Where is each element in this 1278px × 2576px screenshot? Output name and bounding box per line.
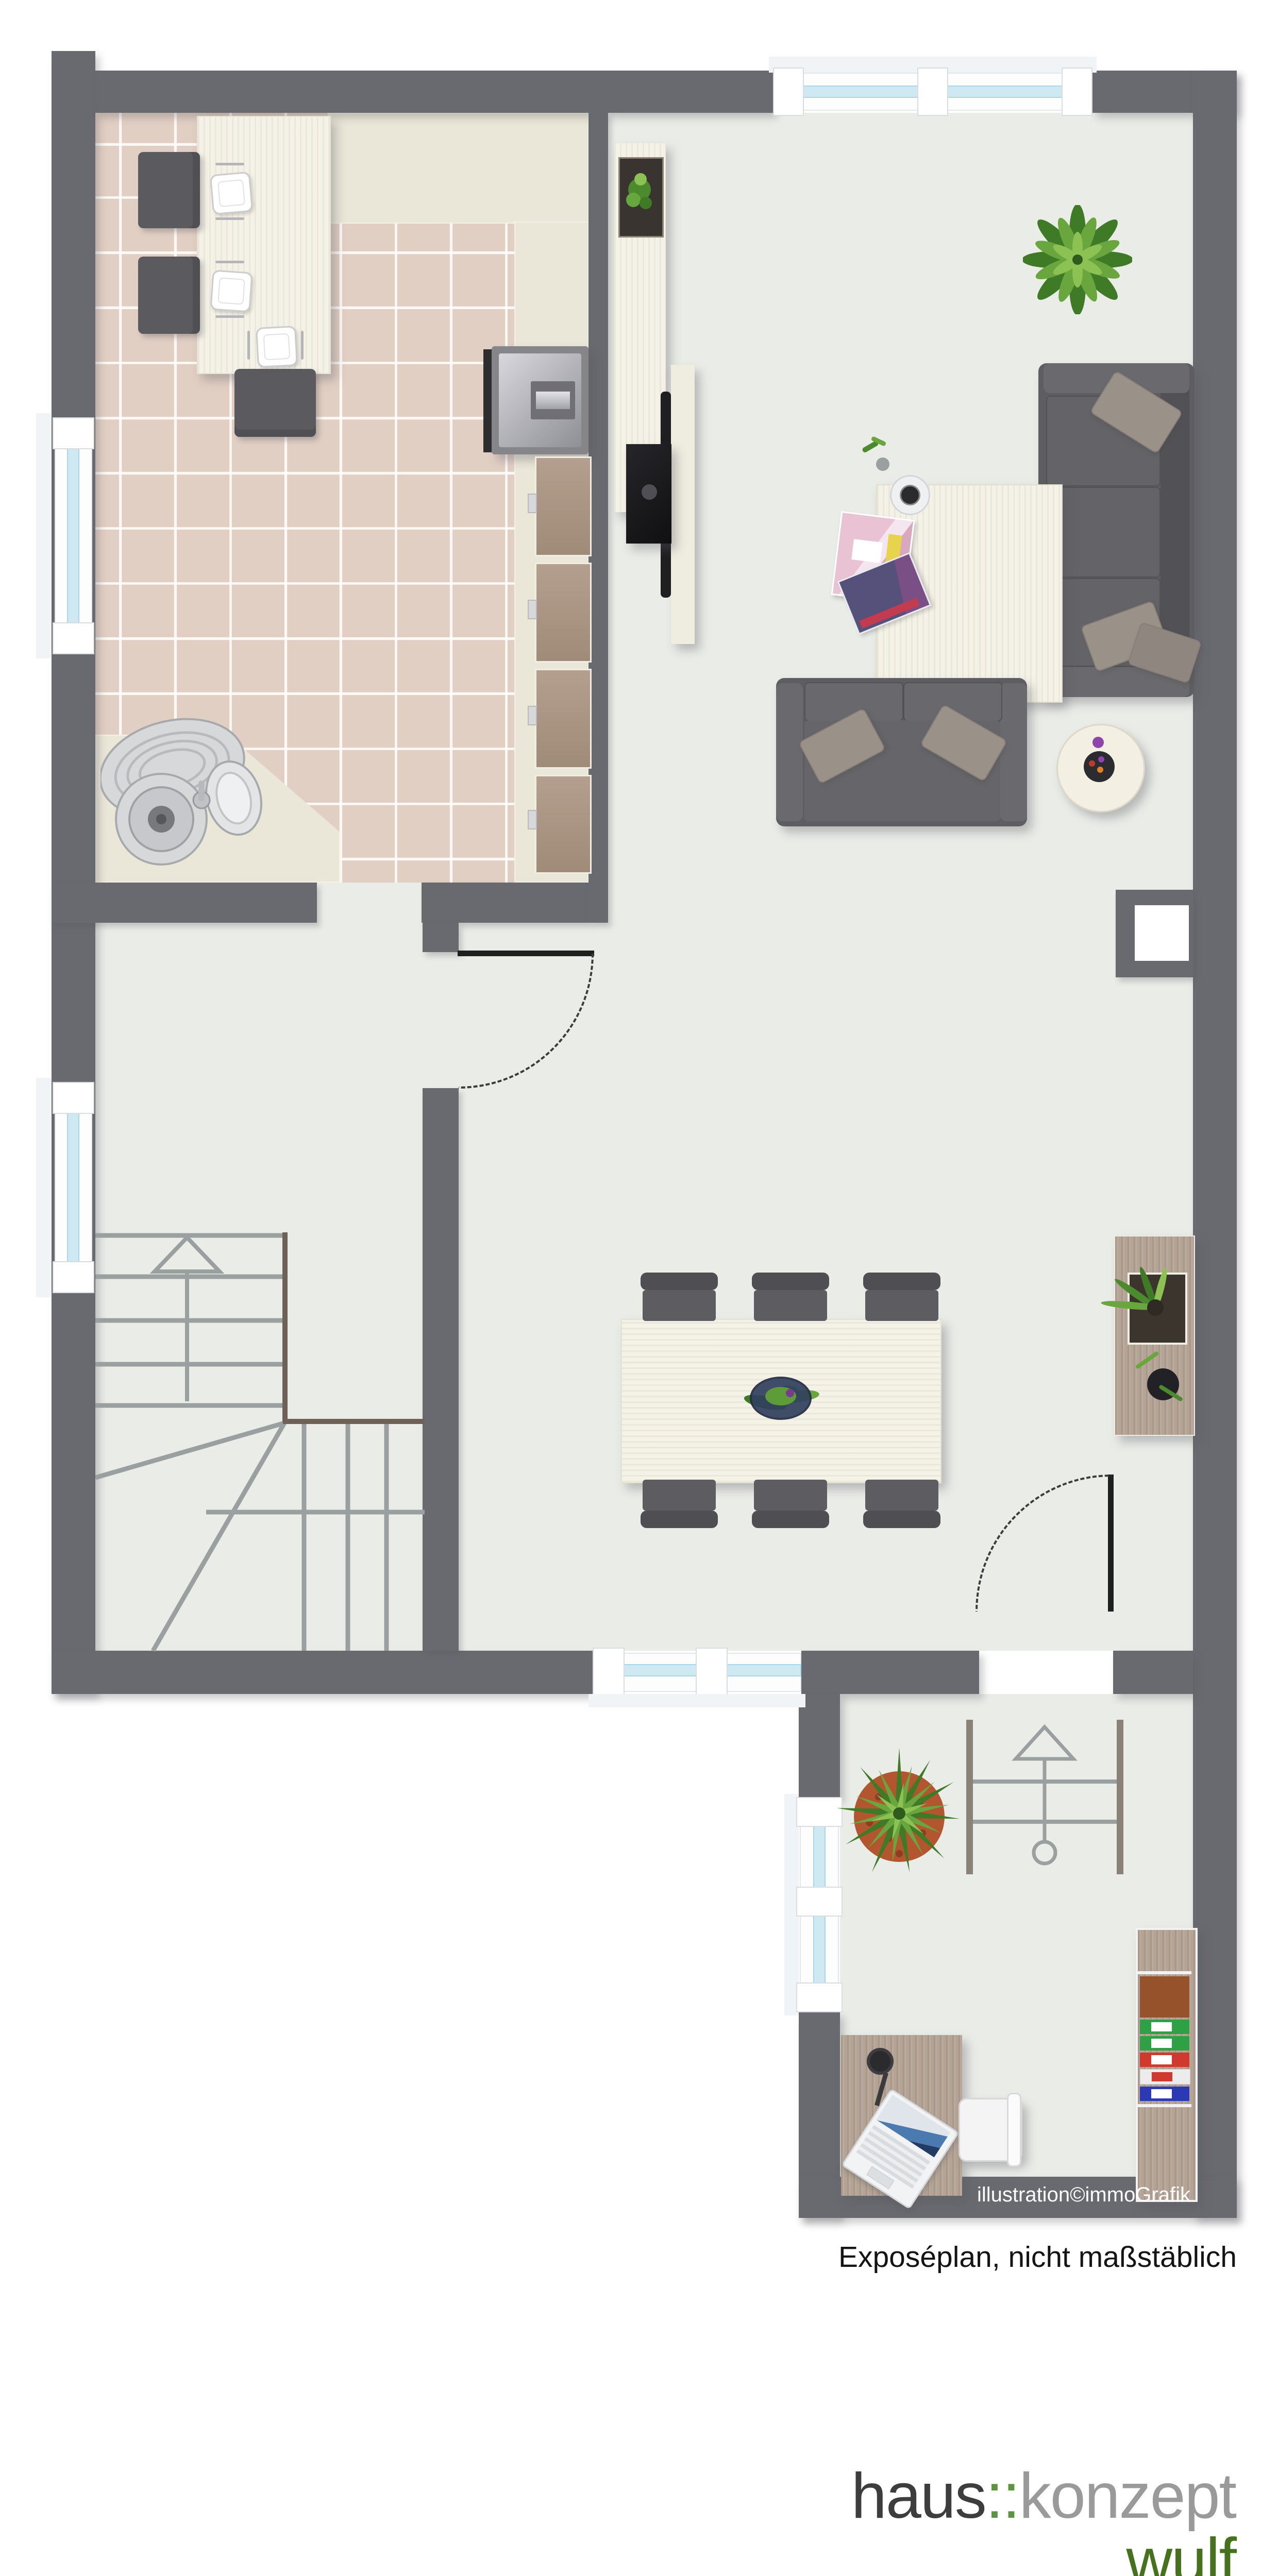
annex-door-swing-arc	[976, 1475, 1112, 1612]
west-window2-sill	[36, 1078, 52, 1297]
west-window1-cap-top	[53, 417, 94, 449]
entry-steps	[966, 1720, 1123, 1877]
cutlery	[301, 331, 304, 360]
fireplace-niche	[1135, 905, 1189, 961]
hall-wall-stub	[423, 923, 459, 952]
west-wall	[52, 51, 95, 1694]
kitchen-cabinet-drawer	[535, 775, 592, 874]
tv	[626, 444, 671, 544]
kitchen-sink	[100, 714, 265, 873]
logo-line-1: haus::konzept	[618, 2464, 1236, 2529]
drawer-handle	[528, 494, 537, 513]
top-wall-left	[95, 71, 773, 113]
company-logo: haus::konzept wulf	[618, 2464, 1236, 2576]
binder-red	[1140, 2053, 1189, 2067]
drawer-handle	[528, 600, 537, 619]
cutlery	[247, 331, 250, 360]
logo-wulf: wulf	[1126, 2526, 1236, 2576]
south-wall-mid	[801, 1651, 979, 1694]
media-wall-planter	[618, 157, 664, 238]
coffee-cup	[900, 485, 920, 505]
fruit-bowl	[1084, 751, 1115, 782]
west-window2-glass	[67, 1113, 79, 1262]
logo-line-2: wulf	[618, 2529, 1236, 2576]
top-window-post-2	[917, 67, 948, 116]
south-window-sill	[588, 1694, 805, 1707]
annex-window-cap-3	[796, 1982, 843, 2012]
cutlery	[215, 163, 244, 165]
kitchen-chair	[138, 257, 200, 334]
bowl-flower	[1092, 737, 1104, 748]
east-wall	[1193, 71, 1237, 2218]
binder-green	[1140, 2036, 1189, 2050]
shelf-board	[1138, 2104, 1191, 2107]
place-setting-plate	[256, 326, 298, 368]
kitchen-counter-top	[328, 113, 588, 224]
cutlery	[215, 261, 244, 263]
storage-box	[1140, 1976, 1189, 2018]
west-window2-cap-top	[53, 1082, 94, 1114]
place-setting-plate	[210, 172, 254, 215]
kitchen-wall-left	[52, 883, 317, 923]
kitchen-chair	[234, 369, 316, 437]
shelf-board	[1138, 1971, 1191, 1974]
south-window-cap-1	[593, 1648, 625, 1697]
top-window-post-1	[773, 67, 804, 116]
top-window-post-3	[1062, 67, 1092, 116]
hall-door-swing-arc	[459, 954, 594, 1089]
binder-blue	[1140, 2087, 1189, 2101]
sideboard-plant	[1082, 1247, 1196, 1360]
logo-haus: haus	[851, 2461, 986, 2532]
south-wall-left	[52, 1651, 593, 1694]
hall-wall-lower	[423, 1088, 459, 1651]
place-setting-plate	[210, 269, 253, 312]
floorplan-page: illustration©immoGrafik Exposéplan, nich…	[0, 0, 1278, 2576]
logo-konzept: konzept	[1019, 2461, 1236, 2532]
disclaimer-text: Exposéplan, nicht maßstäblich	[670, 2240, 1237, 2279]
desk-lamp-head	[867, 2048, 894, 2075]
west-window2-cap-bottom	[53, 1261, 94, 1293]
planter-plant	[620, 159, 659, 233]
south-wall-right	[1113, 1651, 1193, 1694]
logo-separator: ::	[986, 2461, 1019, 2532]
west-window1-sill	[36, 413, 52, 658]
kitchen-cabinet-drawer	[535, 669, 592, 769]
office-chair-back	[1007, 2093, 1021, 2167]
yucca-plant	[822, 1725, 977, 1900]
kitchen-chair	[138, 152, 200, 228]
vase-with-sprig	[876, 457, 889, 471]
oven	[492, 346, 588, 454]
table-centerpiece	[734, 1366, 827, 1428]
west-window1-cap-bottom	[53, 622, 94, 654]
watermark-text: illustration©immoGrafik	[773, 2183, 1190, 2213]
cutlery	[215, 217, 244, 220]
cutlery	[215, 315, 244, 318]
south-window-cap-2	[696, 1648, 728, 1697]
winder-staircase	[95, 1231, 428, 1652]
kitchen-cabinet-drawer	[535, 563, 592, 663]
binder-white	[1140, 2069, 1190, 2084]
potted-plant	[1023, 205, 1132, 314]
media-wall-panel-2	[671, 365, 695, 644]
kitchen-cabinet-drawer	[535, 456, 592, 556]
kitchen-wall-right	[422, 883, 588, 923]
drawer-handle	[528, 706, 537, 725]
cooktop-strip	[483, 349, 492, 452]
drawer-handle	[528, 810, 537, 829]
west-window1-glass	[67, 448, 79, 623]
binder-green	[1140, 2020, 1189, 2034]
